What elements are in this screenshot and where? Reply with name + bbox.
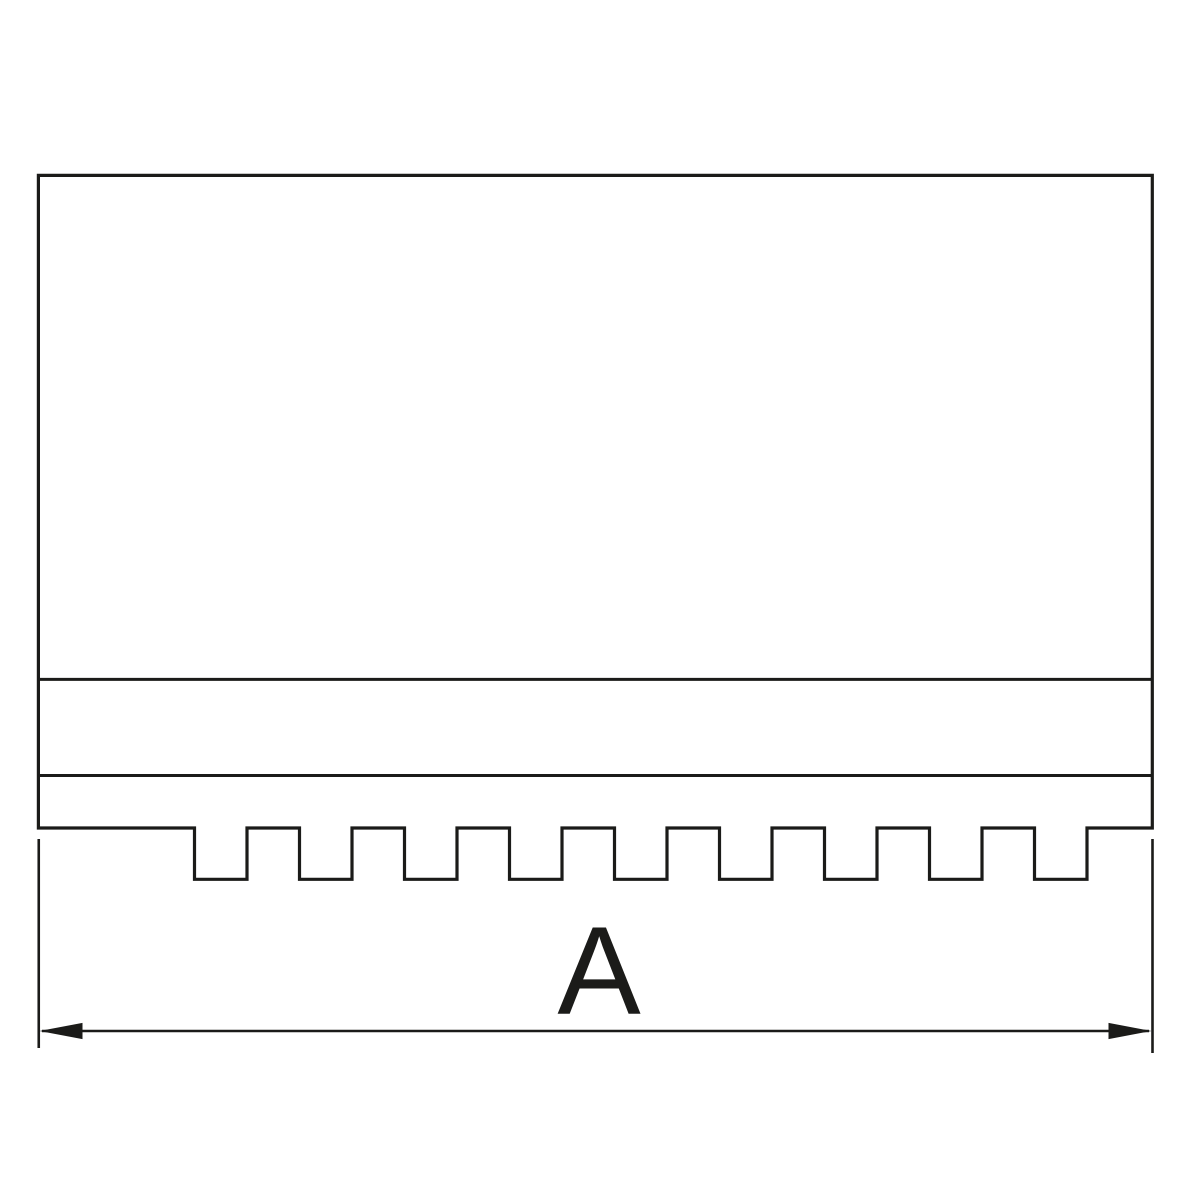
svg-text:A: A	[557, 901, 641, 1040]
